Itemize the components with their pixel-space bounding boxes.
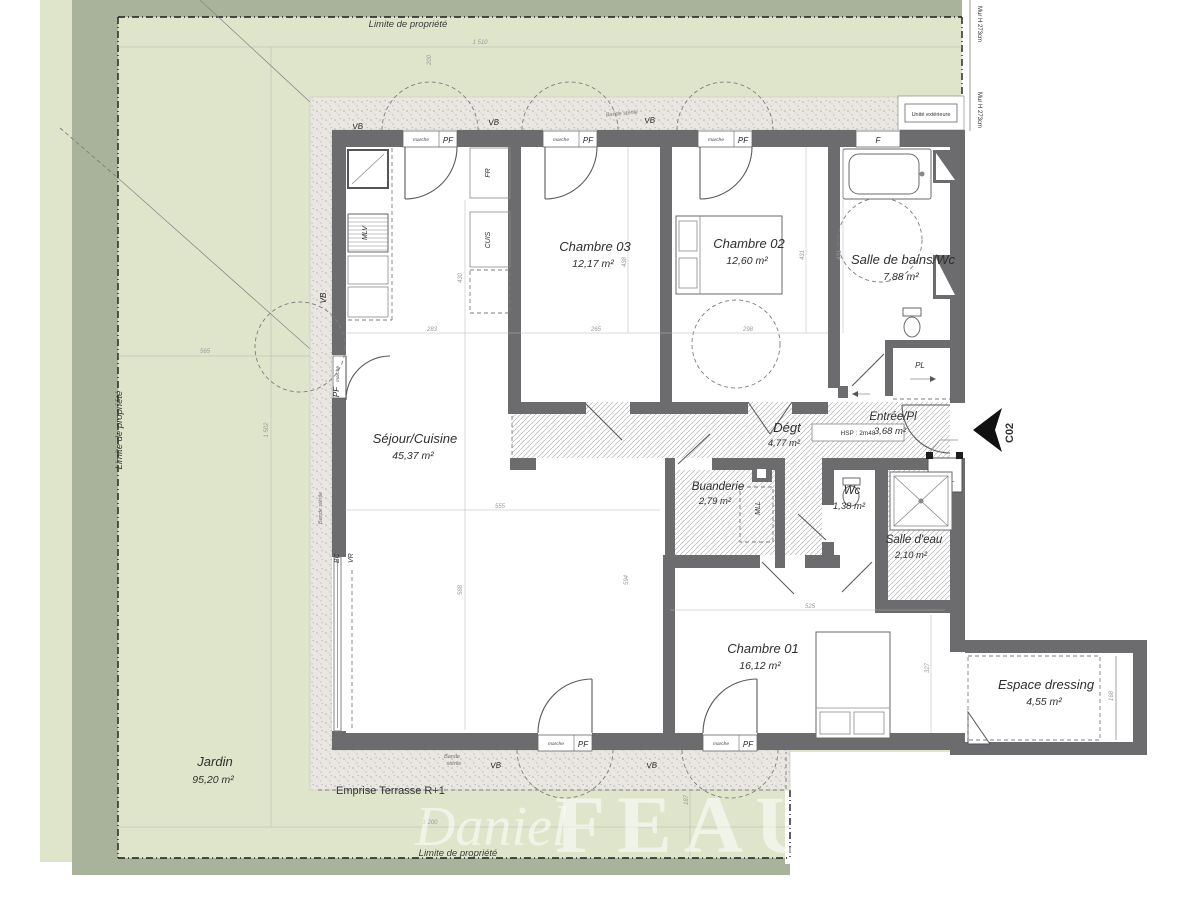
- room-sejour-name: Séjour/Cuisine: [373, 431, 458, 446]
- svg-text:PF: PF: [332, 386, 341, 397]
- dim-200: 200: [427, 54, 433, 66]
- svg-text:168: 168: [1109, 690, 1115, 701]
- mll-label: MLL: [755, 501, 762, 515]
- room-buanderie-area: 2,79 m²: [698, 496, 732, 507]
- dim-1502: 1 502: [264, 422, 270, 438]
- room-ch03-area: 12,17 m²: [572, 258, 614, 270]
- hsp-label: HSP : 2m48: [841, 430, 876, 437]
- window-pf-bottom-1: marche PF: [538, 735, 592, 751]
- svg-text:430: 430: [458, 272, 464, 283]
- svg-text:438: 438: [622, 256, 628, 267]
- svg-text:marche: marche: [553, 137, 569, 143]
- garden-area: 95,20 m²: [192, 774, 234, 786]
- room-dressing-area: 4,55 m²: [1026, 696, 1062, 708]
- entrance-code: C02: [1004, 423, 1016, 443]
- watermark-last: FEAU: [555, 779, 826, 870]
- window-pf-bottom-2: marche PF: [703, 735, 757, 751]
- vb-label-3: VB: [644, 115, 656, 125]
- vb-label-2: VB: [488, 117, 500, 127]
- room-entree-area: 3,68 m²: [874, 426, 907, 437]
- room-salledeau-name: Salle d'eau: [886, 534, 943, 546]
- svg-text:marche: marche: [548, 741, 564, 747]
- svg-text:431: 431: [800, 250, 806, 260]
- cuis-label: CUIS: [485, 231, 492, 248]
- hatch-passage: [785, 458, 822, 555]
- fr-label: FR: [485, 168, 492, 177]
- svg-text:555: 555: [495, 504, 506, 510]
- svg-text:PF: PF: [583, 136, 594, 145]
- dim-1510: 1 510: [472, 40, 488, 46]
- svg-text:283: 283: [426, 327, 438, 333]
- svg-text:marche: marche: [413, 137, 429, 143]
- right-boundary: Mur H 273cm Mur H 273cm: [970, 0, 982, 131]
- entrance-arrow-icon: [973, 408, 1002, 452]
- bc-label: BC: [334, 552, 341, 563]
- room-sdb-name: Salle de bains/Wc: [851, 252, 956, 267]
- room-degt-name: Dégt: [773, 420, 802, 435]
- room-entree-name: Entrée/Pl: [869, 411, 917, 423]
- entrance-marker: C02: [973, 408, 1016, 452]
- room-wc-area: 1,38 m²: [833, 501, 866, 512]
- svg-text:594: 594: [624, 574, 630, 585]
- room-buanderie-name: Buanderie: [692, 481, 744, 493]
- svg-text:PF: PF: [738, 136, 749, 145]
- vb-label-6: VB: [646, 760, 658, 770]
- limite-label-left: Limite de propriété: [114, 391, 125, 470]
- svg-text:525: 525: [805, 604, 816, 610]
- room-degt-area: 4,77 m²: [768, 438, 801, 449]
- window-pf-top-3: marche PF: [698, 131, 752, 147]
- vb-label-5: VB: [490, 760, 502, 770]
- svg-text:marche: marche: [713, 741, 729, 747]
- bande-sterile-left: Bande stérile: [318, 492, 324, 524]
- dim-565: 565: [200, 349, 211, 355]
- svg-text:431: 431: [837, 250, 843, 260]
- floor-plan-page: Limite de propriété Limite de propriété …: [0, 0, 1200, 900]
- outer-green-strip: [40, 0, 72, 862]
- room-ch03-name: Chambre 03: [559, 239, 631, 254]
- vr-label: VR: [348, 553, 355, 563]
- toilet-sdb-tank: [903, 308, 921, 316]
- room-ch02-area: 12,60 m²: [726, 255, 768, 267]
- room-ch01-area: 16,12 m²: [739, 660, 781, 672]
- vb-label-4: VB: [319, 292, 328, 303]
- room-salledeau-area: 2,10 m²: [894, 550, 928, 561]
- garden-name: Jardin: [196, 754, 232, 769]
- floor-plan-drawing: Limite de propriété Limite de propriété …: [0, 0, 1200, 900]
- mur-label-top: Mur H 273cm: [976, 6, 982, 42]
- svg-text:PF: PF: [743, 740, 754, 749]
- svg-text:PF: PF: [578, 740, 589, 749]
- mur-label: Mur H 273cm: [976, 92, 982, 128]
- svg-text:588: 588: [458, 584, 464, 595]
- vb-label-1: VB: [352, 121, 364, 131]
- room-ch01-name: Chambre 01: [727, 641, 799, 656]
- bande-sterile-bottom-1: Bande: [444, 754, 460, 760]
- svg-text:PF: PF: [443, 136, 454, 145]
- limite-label-top: Limite de propriété: [369, 19, 448, 30]
- room-wc-name: Wc: [844, 485, 861, 497]
- room-sejour-area: 45,37 m²: [392, 450, 434, 462]
- unite-exterieure-label: Unité extérieure: [912, 112, 951, 118]
- watermark-first: Daniel: [414, 796, 567, 858]
- svg-text:327: 327: [925, 662, 931, 673]
- svg-text:298: 298: [742, 327, 754, 333]
- window-pf-top-1: marche PF: [403, 131, 457, 147]
- bed-chambre01: [816, 632, 890, 738]
- svg-text:265: 265: [590, 327, 602, 333]
- toilet-sdb-icon: [904, 317, 920, 337]
- bande-sterile-bottom-2: stérile: [447, 761, 462, 767]
- room-sdb-area: 7,88 m²: [883, 271, 919, 283]
- svg-text:marche: marche: [708, 137, 724, 143]
- mlv-label: MLV: [362, 225, 369, 240]
- door-pf-left: marche PF: [332, 356, 346, 398]
- window-pf-top-2: marche PF: [543, 131, 597, 147]
- room-dressing-name: Espace dressing: [998, 677, 1095, 692]
- shower: [890, 472, 952, 530]
- toilet-wc-tank: [843, 478, 860, 485]
- pl-label: PL: [915, 361, 925, 370]
- room-ch02-name: Chambre 02: [713, 236, 785, 251]
